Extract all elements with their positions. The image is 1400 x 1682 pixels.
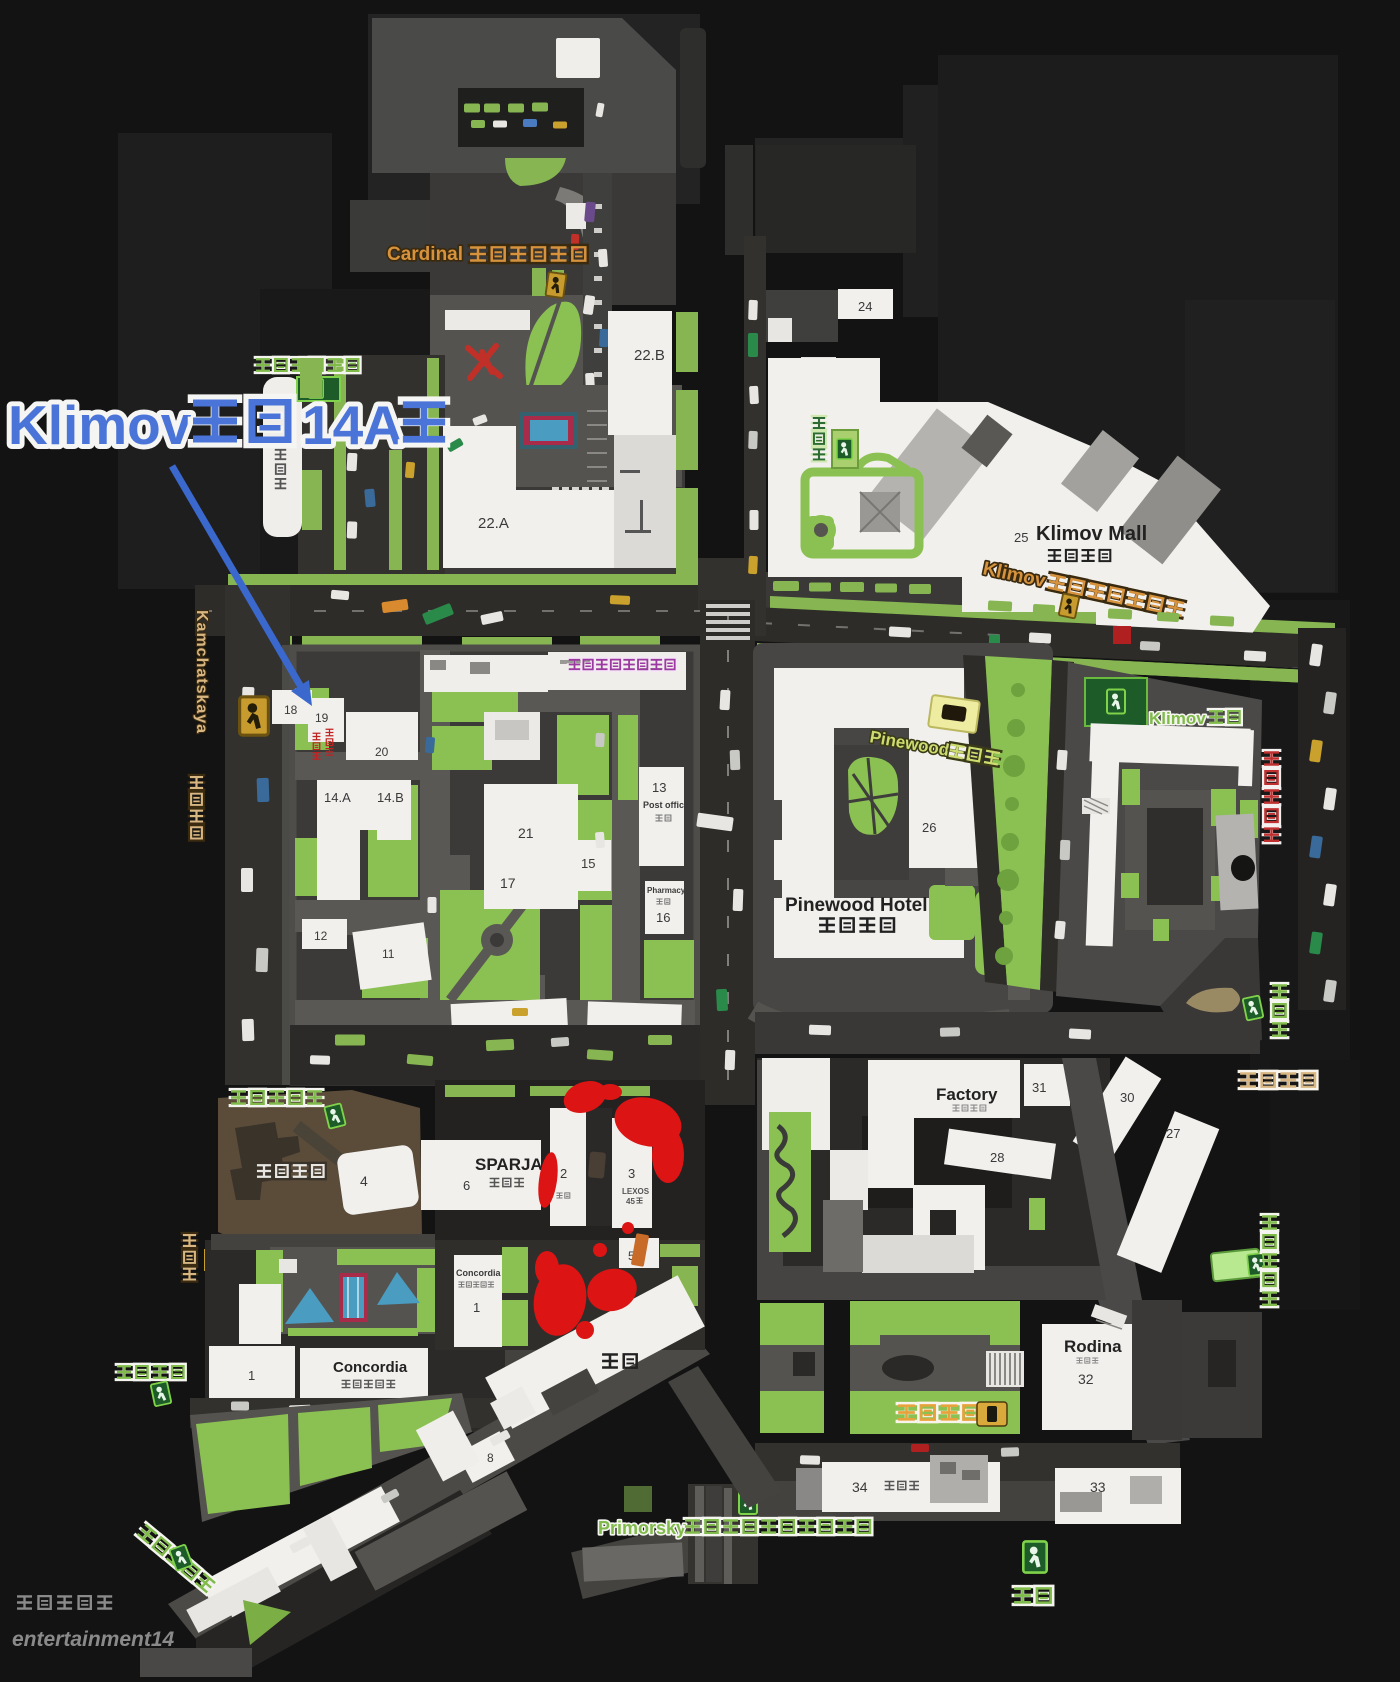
svg-text:Kamchatskaya: Kamchatskaya bbox=[193, 610, 210, 734]
svg-text:27: 27 bbox=[1166, 1126, 1180, 1141]
svg-text:26: 26 bbox=[922, 820, 936, 835]
svg-text:Klimov: Klimov bbox=[1149, 709, 1206, 728]
svg-text:20: 20 bbox=[375, 745, 389, 759]
svg-text:18: 18 bbox=[284, 703, 298, 717]
svg-text:28: 28 bbox=[990, 1150, 1004, 1165]
svg-text:33: 33 bbox=[1090, 1479, 1106, 1495]
svg-text:Concordia: Concordia bbox=[456, 1268, 501, 1278]
svg-text:1: 1 bbox=[248, 1368, 255, 1383]
svg-text:Post office: Post office bbox=[643, 800, 689, 810]
svg-text:11: 11 bbox=[382, 947, 395, 961]
svg-text:14.A: 14.A bbox=[324, 790, 351, 805]
svg-text:LEXOS: LEXOS bbox=[622, 1187, 650, 1196]
svg-text:12: 12 bbox=[314, 929, 328, 943]
svg-text:45: 45 bbox=[626, 1197, 635, 1206]
svg-text:13: 13 bbox=[652, 780, 666, 795]
svg-text:25: 25 bbox=[1014, 530, 1028, 545]
svg-text:entertainment14: entertainment14 bbox=[12, 1628, 175, 1651]
svg-text:Pinewood Hotel: Pinewood Hotel bbox=[785, 895, 928, 916]
svg-text:17: 17 bbox=[500, 875, 516, 891]
svg-text:22.A: 22.A bbox=[478, 515, 509, 532]
svg-text:31: 31 bbox=[1032, 1080, 1046, 1095]
svg-text:8: 8 bbox=[487, 1451, 494, 1465]
svg-text:34: 34 bbox=[852, 1479, 868, 1495]
svg-text:14.B: 14.B bbox=[377, 790, 404, 805]
svg-text:15: 15 bbox=[581, 856, 595, 871]
svg-text:3: 3 bbox=[628, 1166, 635, 1181]
svg-text:Concordia: Concordia bbox=[333, 1359, 408, 1376]
svg-text:2: 2 bbox=[560, 1166, 567, 1181]
svg-text:19: 19 bbox=[315, 711, 329, 725]
svg-text:22.B: 22.B bbox=[634, 347, 665, 364]
svg-text:Klimov: Klimov bbox=[8, 394, 192, 456]
svg-text:Factory: Factory bbox=[936, 1085, 998, 1104]
svg-text:24: 24 bbox=[858, 299, 872, 314]
svg-text:SPARJA: SPARJA bbox=[475, 1155, 543, 1174]
svg-text:Cardinal: Cardinal bbox=[387, 244, 463, 265]
svg-text:Primorsky: Primorsky bbox=[598, 1518, 686, 1538]
svg-text:Rodina: Rodina bbox=[1064, 1337, 1122, 1356]
svg-text:4: 4 bbox=[360, 1173, 368, 1189]
svg-text:Klimov Mall: Klimov Mall bbox=[1036, 523, 1147, 545]
svg-text:30: 30 bbox=[1120, 1090, 1134, 1105]
svg-text:32: 32 bbox=[1078, 1371, 1094, 1387]
svg-text:Pharmacy: Pharmacy bbox=[647, 886, 686, 895]
svg-text:6: 6 bbox=[463, 1178, 470, 1193]
svg-text:14A: 14A bbox=[302, 394, 403, 456]
svg-text:21: 21 bbox=[518, 825, 534, 841]
svg-text:16: 16 bbox=[656, 910, 670, 925]
svg-text:1: 1 bbox=[473, 1300, 480, 1315]
